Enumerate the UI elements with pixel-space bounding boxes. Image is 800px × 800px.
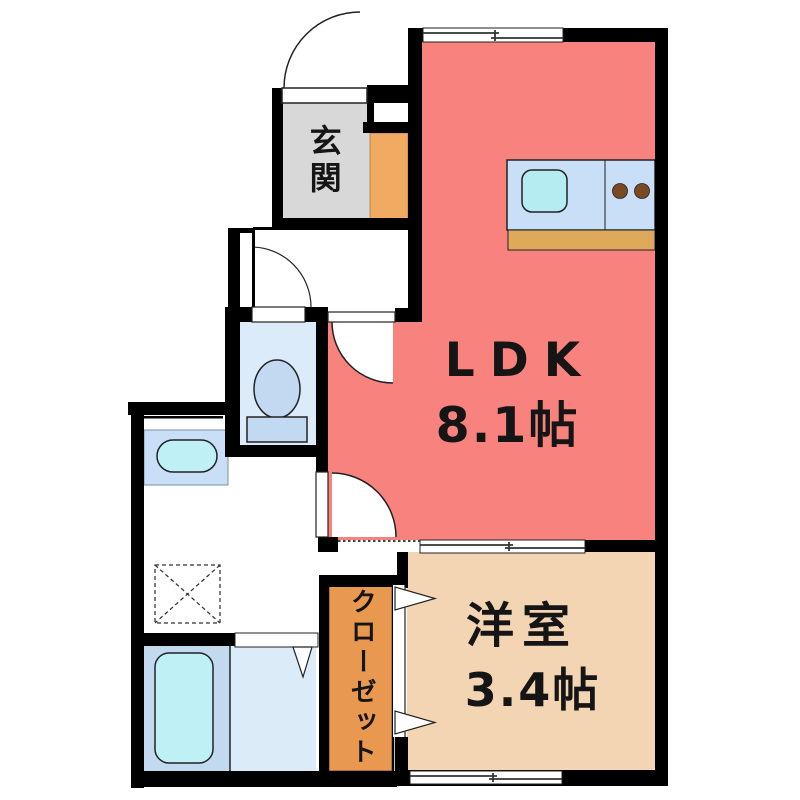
vanity-basin [157, 440, 217, 472]
western-room-size-label: 3.4帖 [425, 666, 640, 714]
wall-segment [363, 122, 408, 133]
wall-segment [585, 540, 655, 552]
kitchen-sink [522, 170, 567, 212]
wall-segment [131, 633, 235, 646]
toilet-door-leaf [252, 307, 305, 322]
bathroom-door-opening [235, 633, 318, 647]
wall-segment [655, 28, 668, 785]
toilet-tank [247, 417, 307, 442]
toilet-bowl [254, 360, 300, 418]
wall-segment [225, 307, 240, 457]
wall-segment [272, 103, 283, 227]
wall-segment [305, 307, 328, 322]
stove-burner-right [635, 184, 650, 199]
washroom-window [140, 416, 223, 419]
wall-segment [272, 218, 410, 230]
bathtub [155, 653, 213, 763]
wall-segment [225, 445, 325, 457]
wall-segment [397, 552, 408, 588]
wall-segment [318, 537, 338, 552]
closet-label: クローゼット [347, 588, 374, 768]
wall-segment [131, 402, 144, 788]
washroom-door-leaf [316, 472, 328, 537]
western-room-label: 洋室 [412, 601, 632, 651]
ldk-size-label: 8.1帖 [400, 400, 615, 451]
ldk-door-leaf [328, 312, 395, 322]
kitchen-counter-edge [508, 230, 655, 250]
window-top [423, 28, 563, 42]
hall-side-window [240, 233, 252, 307]
stove-burner-left [613, 184, 628, 199]
western-room [407, 552, 655, 770]
window-middle [420, 540, 585, 553]
entrance-door-leaf [282, 88, 367, 103]
ldk-label: LDK [410, 336, 630, 385]
wall-segment [253, 227, 272, 230]
wall-segment [367, 85, 410, 103]
window-bottom [410, 771, 562, 784]
wall-segment [395, 308, 422, 322]
entrance-label: 玄関 [306, 124, 340, 198]
wall-segment [131, 771, 397, 787]
wall-segment [319, 575, 328, 786]
wall-segment [408, 42, 422, 308]
wall-segment [319, 575, 397, 587]
shoe-cabinet [370, 133, 408, 220]
floorplan-canvas: 玄関 LDK 8.1帖 洋室 3.4帖 クローゼット [0, 0, 800, 800]
